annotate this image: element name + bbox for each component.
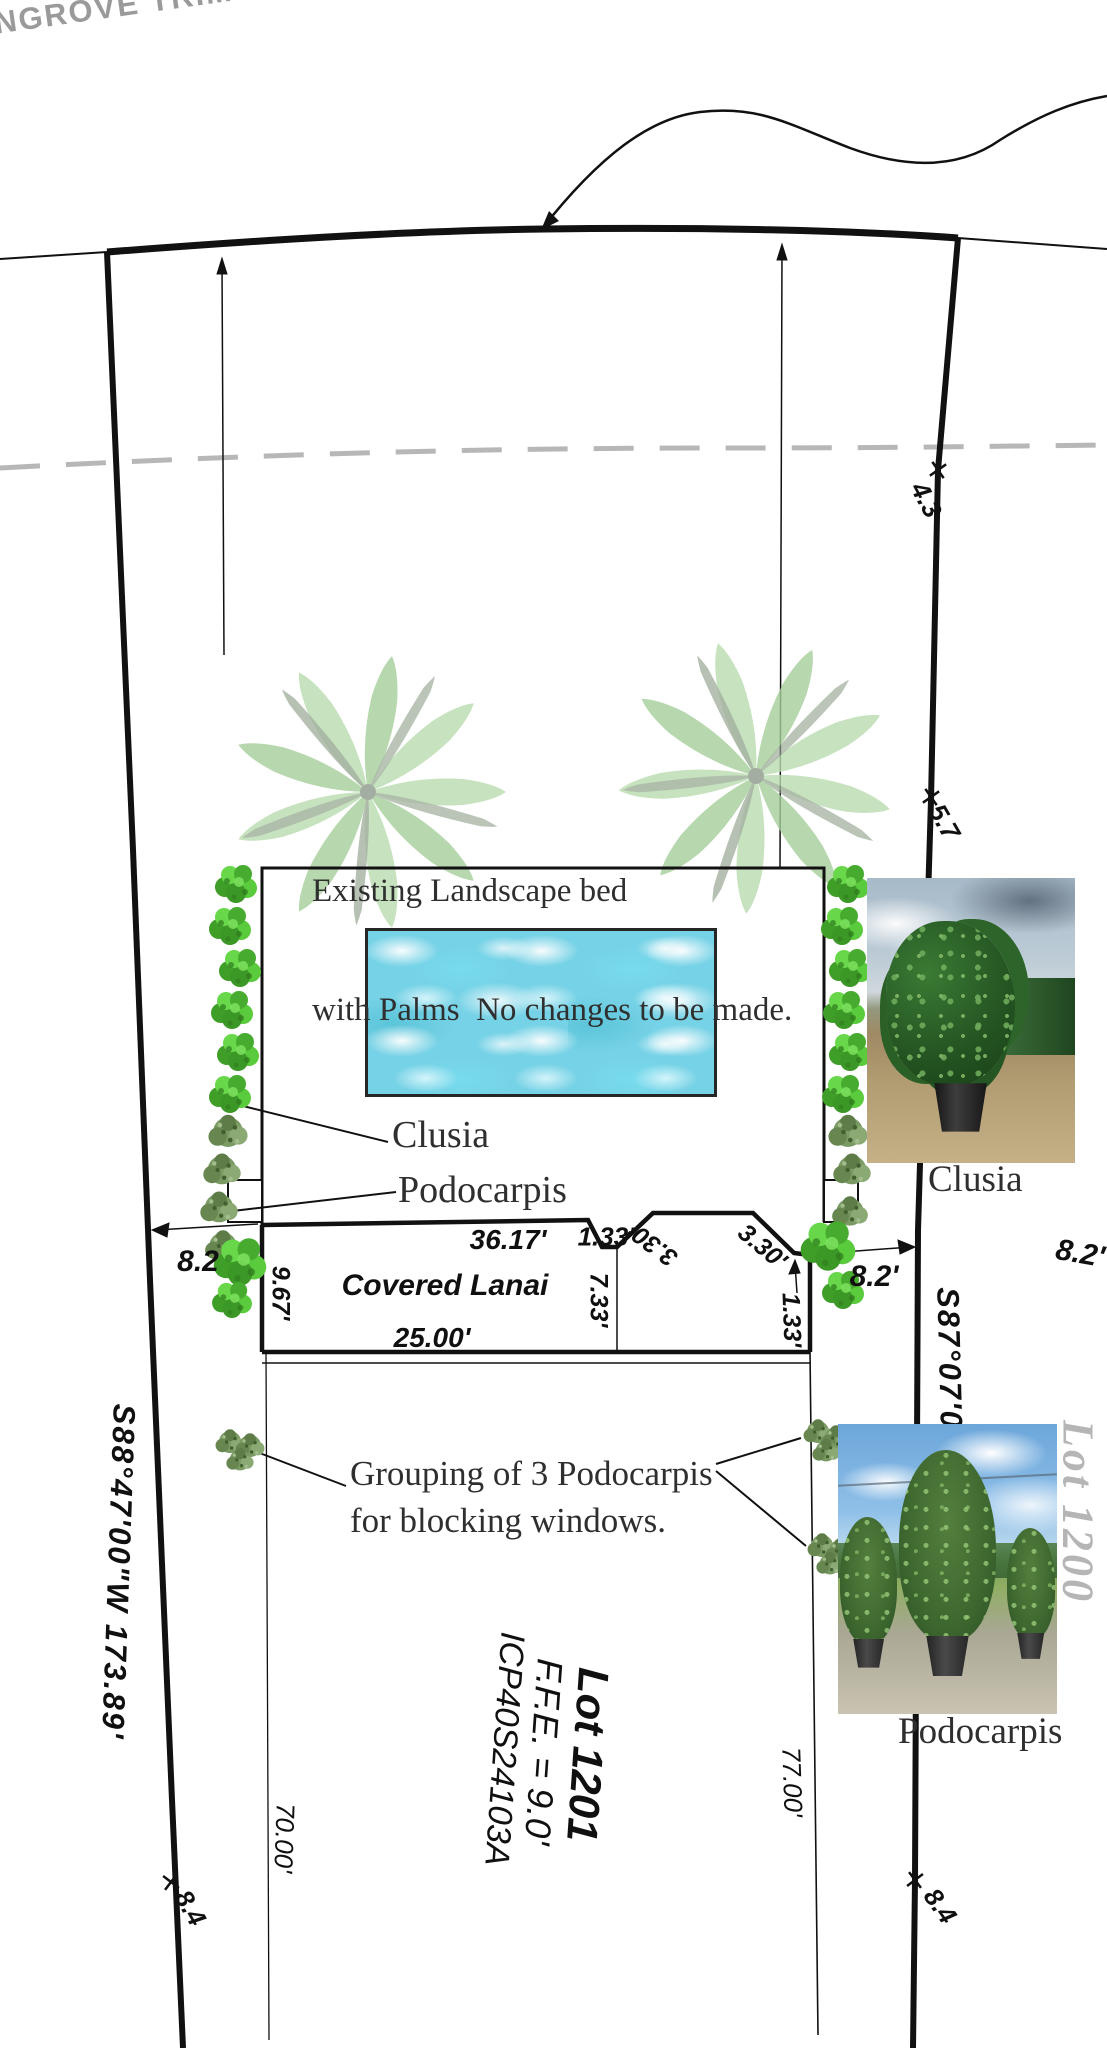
podocarpis-photo: [838, 1424, 1057, 1714]
dim-offset-right: 8.2': [850, 1260, 899, 1294]
dim-lanai-bottom: 25.00': [394, 1322, 471, 1354]
curved-leader: [541, 96, 1107, 230]
podocarpus-plant-main: [899, 1450, 995, 1641]
dim-lanai-west: 9.67': [266, 1266, 295, 1321]
podocarpis-label: Podocarpis: [398, 1168, 567, 1212]
podocarpis-photo-caption: Podocarpis: [898, 1710, 1062, 1753]
lanai-label: Covered Lanai: [342, 1269, 549, 1303]
plant-pot: [851, 1639, 886, 1668]
plant-pot: [1015, 1633, 1046, 1659]
grouping-annotation: Grouping of 3 Podocarpis for blocking wi…: [350, 1450, 713, 1545]
bed-annotation-line1: Existing Landscape bed: [312, 872, 792, 912]
west-boundary-line: [107, 252, 183, 2048]
bed-annotation: Existing Landscape bed with Palms No cha…: [312, 793, 792, 1110]
front-boundary-line: [107, 228, 958, 252]
right-clusia-hedge: [801, 865, 871, 1309]
podocarpus-plant: [840, 1517, 897, 1645]
clusia-shrub: [886, 921, 1015, 1086]
dim-offset-left: 8.2: [177, 1245, 219, 1279]
clusia-photo-caption: Clusia: [928, 1158, 1023, 1201]
clusia-photo: [867, 878, 1075, 1163]
grouping-line2: for blocking windows.: [350, 1497, 713, 1544]
plant-pot: [923, 1636, 971, 1677]
site-plan-canvas: S87°07'00"W: [0, 0, 1107, 2048]
dim-step-right: 1.33': [776, 1292, 807, 1348]
podocarpus-grouping-left: [216, 1429, 265, 1470]
grouping-line1: Grouping of 3 Podocarpis: [350, 1450, 713, 1497]
plant-pot: [931, 1083, 989, 1131]
adjacent-lot-label: Lot 1200: [1053, 1420, 1104, 1604]
clusia-label: Clusia: [392, 1113, 489, 1157]
dim-lanai-east: 7.33': [584, 1273, 613, 1328]
bed-annotation-line2: with Palms No changes to be made.: [312, 991, 792, 1031]
dim-line-west: 70.00': [267, 1802, 300, 1873]
podocarpus-plant: [1007, 1528, 1055, 1638]
dim-lanai-top: 36.17': [470, 1224, 547, 1256]
dim-line-east: 77.00': [775, 1746, 808, 1817]
lot-label-block: Lot 1201 F.F.E. = 9.0' ICP40S24103A: [477, 1631, 620, 1874]
